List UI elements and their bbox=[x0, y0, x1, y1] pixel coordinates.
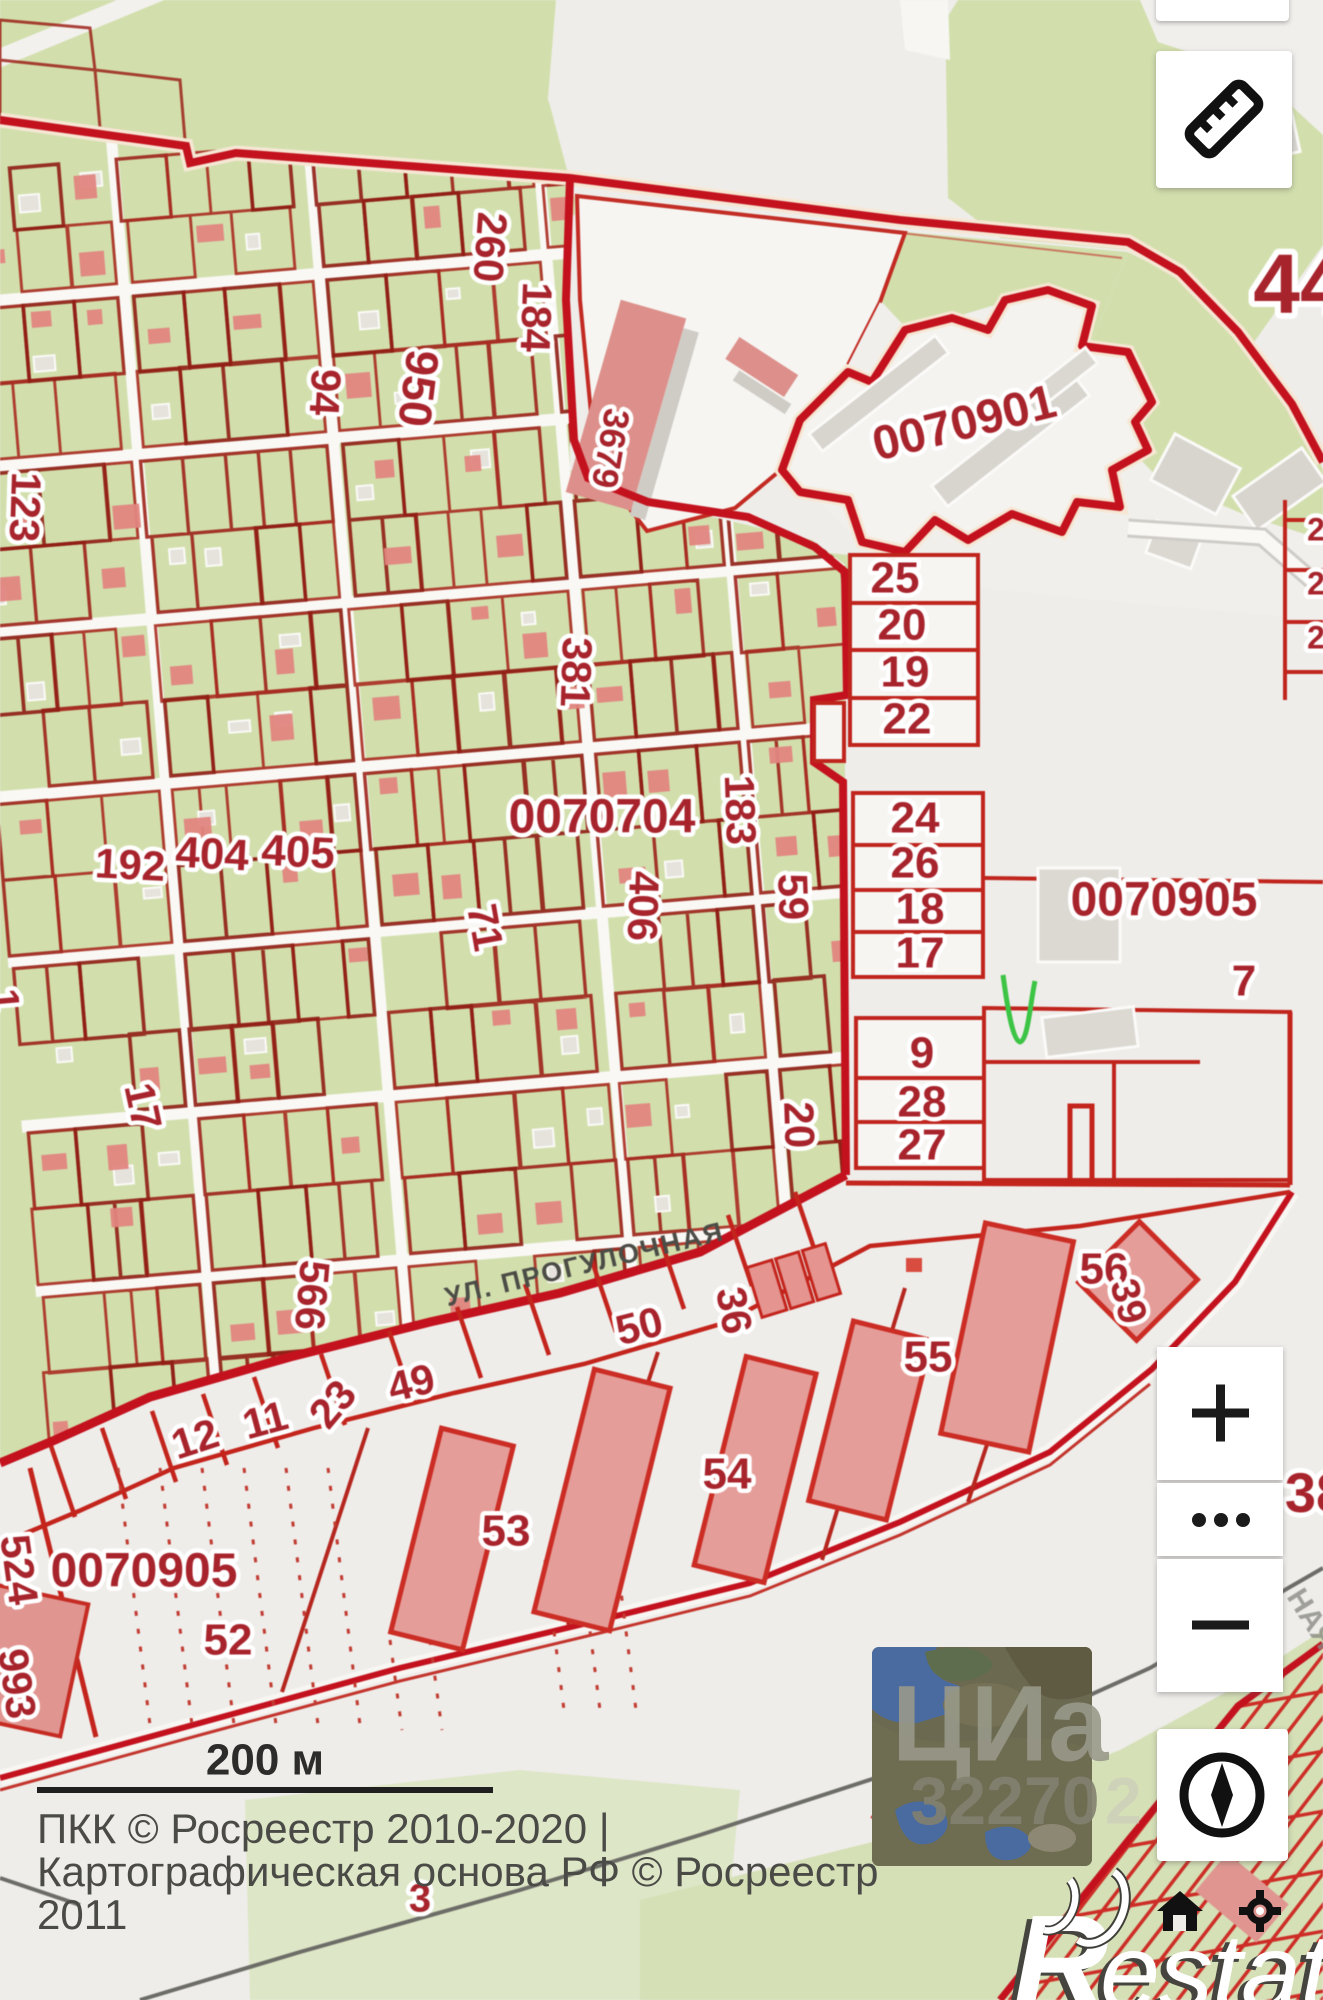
svg-text:2: 2 bbox=[1307, 619, 1323, 655]
svg-text:183: 183 bbox=[716, 774, 765, 846]
svg-text:2: 2 bbox=[1105, 1763, 1142, 1837]
svg-text:71: 71 bbox=[458, 900, 512, 954]
svg-text:ПКК © Росреестр 2010-2020 |: ПКК © Росреестр 2010-2020 | bbox=[37, 1805, 610, 1852]
svg-text:405: 405 bbox=[260, 826, 336, 879]
svg-text:44: 44 bbox=[1253, 237, 1323, 331]
svg-text:192: 192 bbox=[94, 839, 166, 890]
svg-text:20: 20 bbox=[878, 601, 927, 650]
svg-text:estate: estate bbox=[1100, 1911, 1323, 2000]
svg-text:55: 55 bbox=[904, 1333, 953, 1382]
svg-text:0070704: 0070704 bbox=[509, 791, 696, 844]
svg-text:53: 53 bbox=[482, 1507, 531, 1556]
svg-text:18: 18 bbox=[896, 885, 945, 934]
svg-text:25: 25 bbox=[871, 554, 920, 603]
svg-text:17: 17 bbox=[896, 929, 945, 978]
svg-text:54: 54 bbox=[703, 1450, 752, 1499]
svg-text:19: 19 bbox=[881, 648, 930, 697]
svg-text:94: 94 bbox=[301, 368, 350, 418]
svg-text:123: 123 bbox=[1, 471, 50, 543]
svg-text:381: 381 bbox=[552, 636, 601, 708]
svg-text:1: 1 bbox=[0, 987, 27, 1013]
svg-text:7: 7 bbox=[1232, 957, 1256, 1006]
svg-text:0070905: 0070905 bbox=[1071, 874, 1258, 927]
svg-text:36: 36 bbox=[707, 1283, 761, 1337]
svg-text:404: 404 bbox=[174, 828, 250, 881]
svg-text:9: 9 bbox=[910, 1029, 934, 1078]
svg-text:2011: 2011 bbox=[37, 1891, 127, 1938]
svg-text:59: 59 bbox=[769, 873, 818, 921]
svg-text:950: 950 bbox=[388, 347, 449, 430]
svg-text:38: 38 bbox=[1285, 1461, 1323, 1524]
svg-text:24: 24 bbox=[891, 794, 940, 843]
svg-text:26: 26 bbox=[891, 839, 940, 888]
svg-text:52: 52 bbox=[204, 1616, 253, 1665]
svg-text:2: 2 bbox=[1307, 565, 1323, 601]
svg-text:260: 260 bbox=[465, 211, 517, 284]
svg-text:20: 20 bbox=[775, 1101, 824, 1149]
svg-text:184: 184 bbox=[512, 281, 561, 353]
svg-text:28: 28 bbox=[898, 1078, 947, 1127]
svg-text:22: 22 bbox=[883, 695, 932, 744]
svg-text:27: 27 bbox=[898, 1121, 947, 1170]
svg-text:200 м: 200 м bbox=[206, 1736, 324, 1785]
svg-text:406: 406 bbox=[619, 870, 668, 942]
svg-text:Картографическая основа РФ © Р: Картографическая основа РФ © Росреестр bbox=[37, 1848, 878, 1895]
svg-text:17: 17 bbox=[115, 1079, 171, 1134]
svg-text:0070905: 0070905 bbox=[51, 1545, 238, 1598]
svg-text:32270: 32270 bbox=[910, 1763, 1099, 1839]
svg-text:566: 566 bbox=[286, 1258, 339, 1332]
svg-text:2: 2 bbox=[1307, 511, 1323, 547]
